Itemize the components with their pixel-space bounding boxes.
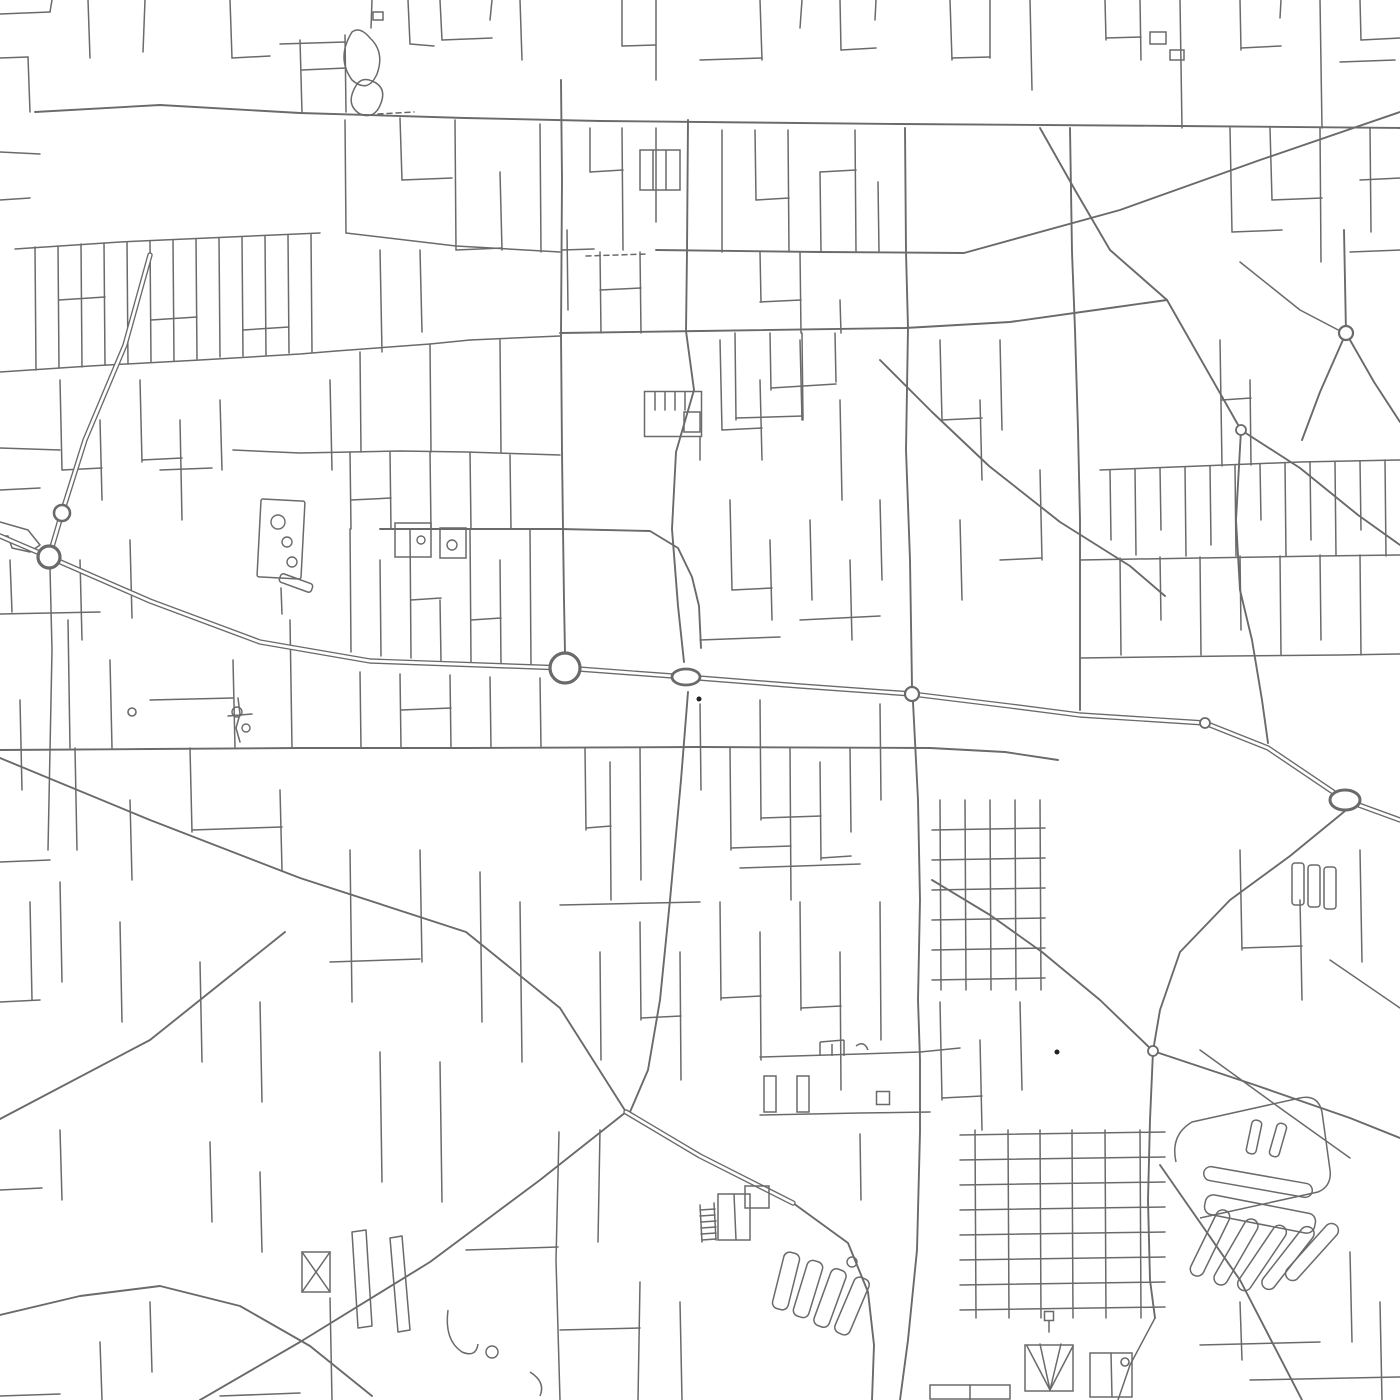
minor-road [455, 120, 456, 250]
minor-road [390, 452, 391, 529]
minor-road [1120, 558, 1121, 655]
minor-road [345, 120, 346, 233]
roundabout [1236, 425, 1246, 435]
minor-road [1200, 557, 1201, 655]
minor-road [1140, 0, 1141, 60]
minor-road [1240, 0, 1241, 50]
minor-road [81, 244, 82, 367]
minor-road [860, 1134, 861, 1200]
minor-road [360, 672, 361, 748]
minor-road [500, 560, 501, 664]
minor-road [585, 748, 586, 830]
roundabout [1330, 790, 1360, 810]
minor-road [1160, 468, 1161, 530]
roundabout [672, 669, 700, 685]
minor-road [755, 130, 756, 200]
minor-road [380, 560, 381, 656]
minor-road [760, 700, 761, 820]
minor-road [1105, 0, 1106, 40]
minor-road [600, 252, 601, 333]
minor-road [104, 243, 105, 365]
minor-road [1250, 380, 1251, 465]
roundabout [1148, 1046, 1158, 1056]
minor-road [440, 600, 441, 661]
minor-road [1160, 557, 1161, 620]
minor-road [450, 675, 451, 748]
minor-road [640, 748, 641, 880]
minor-road [540, 678, 541, 748]
minor-road [196, 239, 197, 359]
building-detail-line [702, 1239, 716, 1240]
minor-road [1320, 128, 1321, 262]
minor-road [1210, 466, 1211, 545]
minor-road [540, 124, 541, 252]
minor-road [371, 0, 372, 28]
minor-road [173, 240, 174, 361]
minor-road [800, 252, 801, 333]
minor-road [410, 529, 411, 658]
minor-road [1072, 1130, 1073, 1318]
minor-road [640, 252, 641, 333]
minor-road [952, 57, 990, 58]
map-canvas [0, 0, 1400, 1400]
minor-road [622, 128, 623, 250]
minor-road [430, 344, 431, 452]
minor-road [1008, 1130, 1009, 1318]
roundabout [1339, 326, 1353, 340]
minor-road [1310, 462, 1311, 540]
minor-road [1105, 1130, 1106, 1318]
minor-road [360, 352, 361, 452]
minor-road [219, 238, 220, 357]
minor-road [58, 246, 59, 368]
minor-road [1285, 463, 1286, 556]
minor-road [470, 452, 471, 529]
minor-road [735, 333, 736, 420]
minor-road [880, 902, 881, 1040]
minor-road [1040, 1130, 1041, 1318]
minor-road [1260, 464, 1261, 520]
minor-road [1110, 470, 1111, 540]
minor-road [855, 130, 856, 252]
minor-road [1106, 37, 1141, 38]
minor-road [265, 236, 266, 355]
minor-road [965, 800, 966, 990]
minor-road [880, 704, 881, 800]
minor-road [567, 230, 568, 310]
minor-road [1360, 555, 1361, 655]
building-detail-line [1111, 1353, 1112, 1397]
minor-road [1135, 469, 1136, 555]
minor-road [640, 922, 641, 1020]
minor-road [600, 952, 601, 1060]
minor-road [760, 252, 761, 302]
minor-road [1370, 128, 1371, 232]
minor-road [490, 677, 491, 748]
building-detail-line [701, 1221, 716, 1222]
minor-road [820, 762, 821, 860]
minor-road [1360, 461, 1361, 530]
minor-road [500, 340, 501, 452]
minor-road [975, 1130, 976, 1318]
minor-road [1185, 467, 1186, 556]
building-detail-line [701, 1227, 716, 1228]
minor-road [350, 529, 351, 652]
building-detail-line [701, 1233, 716, 1234]
minor-road [1385, 460, 1386, 556]
minor-road [1140, 1130, 1141, 1318]
minor-road [1280, 556, 1281, 655]
minor-road [790, 748, 791, 900]
minor-road [840, 0, 841, 50]
minor-road [311, 234, 312, 352]
poi-dot [1055, 1050, 1060, 1055]
minor-road [562, 249, 594, 250]
minor-road [510, 455, 511, 529]
minor-road [820, 172, 821, 252]
minor-road [622, 45, 656, 46]
map-viewport [0, 0, 1400, 1400]
building-detail-line [700, 1209, 715, 1210]
minor-road [242, 237, 243, 356]
minor-road [770, 333, 771, 390]
minor-road [1320, 555, 1321, 640]
minor-road [350, 452, 351, 529]
minor-road [430, 452, 431, 529]
minor-road [1360, 0, 1361, 40]
building-detail-line [700, 1215, 715, 1216]
minor-road [1335, 462, 1336, 556]
roundabout [54, 505, 70, 521]
minor-road [940, 800, 941, 990]
roundabout [38, 546, 60, 568]
minor-road [840, 952, 841, 1090]
minor-road [400, 674, 401, 748]
poi-dot [697, 697, 702, 702]
minor-road [800, 902, 801, 1010]
minor-road [610, 762, 611, 900]
minor-road [878, 182, 879, 252]
minor-road [720, 902, 721, 1000]
minor-road [1280, 0, 1281, 18]
minor-road [281, 588, 282, 614]
roundabout [128, 708, 136, 716]
minor-road [35, 247, 36, 370]
minor-road [730, 748, 731, 850]
minor-road [850, 748, 851, 832]
roundabout [1121, 1358, 1129, 1366]
roundabout [1200, 718, 1210, 728]
minor-road [835, 333, 836, 382]
minor-road [788, 130, 789, 252]
roundabout [550, 653, 580, 683]
minor-road [875, 0, 876, 20]
minor-road [470, 529, 471, 662]
minor-road [0, 57, 28, 58]
roundabout [905, 687, 919, 701]
minor-road [288, 235, 289, 353]
minor-road [530, 529, 531, 666]
